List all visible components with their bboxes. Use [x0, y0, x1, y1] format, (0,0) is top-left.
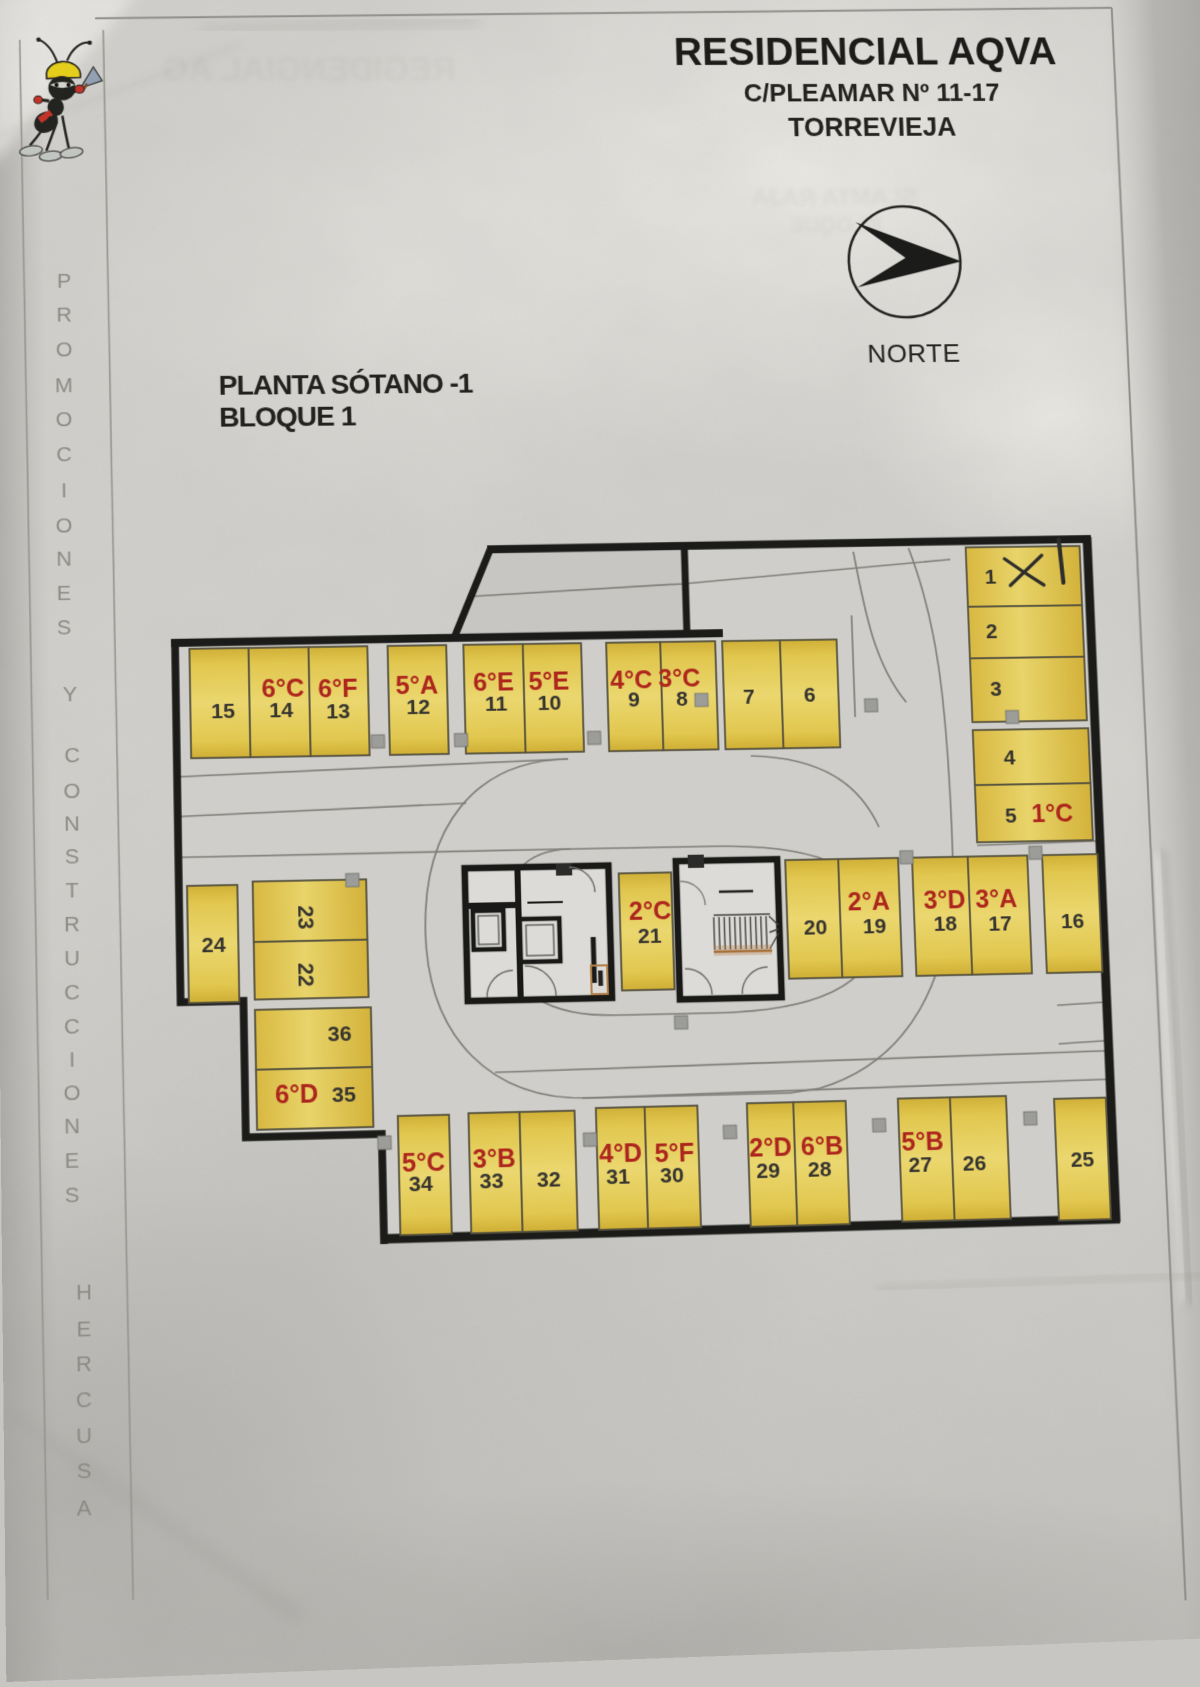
svg-text:C: C	[56, 443, 72, 466]
svg-text:6°D: 6°D	[275, 1081, 319, 1110]
svg-text:U: U	[64, 947, 80, 971]
svg-text:26: 26	[962, 1152, 986, 1176]
svg-text:M: M	[55, 374, 73, 397]
svg-text:C: C	[76, 1388, 92, 1413]
svg-text:C: C	[64, 1015, 80, 1039]
svg-text:I: I	[69, 1048, 75, 1072]
svg-text:23: 23	[293, 905, 317, 929]
svg-text:N: N	[64, 812, 80, 836]
svg-text:O: O	[56, 408, 73, 431]
svg-text:R: R	[64, 913, 80, 937]
svg-text:E: E	[65, 1149, 80, 1174]
svg-text:O: O	[56, 338, 73, 361]
svg-text:3°A: 3°A	[975, 886, 1018, 914]
svg-text:32: 32	[537, 1168, 561, 1193]
svg-text:O: O	[63, 779, 80, 803]
svg-text:C: C	[64, 744, 80, 768]
svg-text:35: 35	[332, 1083, 356, 1108]
svg-text:BLOQUE 1: BLOQUE 1	[219, 400, 356, 432]
svg-text:2: 2	[985, 620, 997, 643]
svg-text:28: 28	[808, 1158, 832, 1182]
svg-text:BLOQUE: BLOQUE	[789, 212, 882, 237]
svg-text:31: 31	[606, 1165, 630, 1190]
svg-text:12: 12	[406, 696, 430, 720]
svg-text:TORREVIEJA: TORREVIEJA	[788, 112, 957, 142]
svg-text:18: 18	[933, 912, 957, 936]
svg-text:C: C	[64, 981, 80, 1005]
svg-text:1: 1	[984, 566, 996, 589]
svg-text:S: S	[77, 1458, 92, 1483]
svg-text:S: S	[65, 845, 80, 869]
svg-text:H: H	[76, 1281, 92, 1306]
svg-text:S: S	[57, 616, 72, 640]
svg-text:13: 13	[326, 700, 350, 724]
svg-text:R: R	[76, 1352, 92, 1377]
svg-text:O: O	[55, 514, 72, 537]
svg-text:17: 17	[988, 912, 1012, 936]
svg-text:14: 14	[269, 699, 294, 723]
svg-text:N: N	[64, 1115, 80, 1140]
svg-text:6: 6	[803, 684, 815, 707]
svg-text:PLANTA SÓTANO -1: PLANTA SÓTANO -1	[218, 368, 473, 401]
svg-text:E: E	[77, 1317, 92, 1342]
svg-text:16: 16	[1061, 910, 1085, 934]
svg-text:24: 24	[202, 933, 227, 957]
svg-text:15: 15	[211, 700, 235, 724]
svg-text:20: 20	[803, 916, 827, 940]
svg-text:10: 10	[537, 691, 561, 715]
svg-text:19: 19	[862, 915, 886, 939]
svg-text:R: R	[56, 303, 72, 326]
svg-text:8: 8	[676, 688, 688, 711]
svg-text:U: U	[76, 1423, 92, 1448]
svg-text:9: 9	[628, 688, 640, 711]
svg-text:34: 34	[409, 1172, 434, 1197]
svg-text:36: 36	[327, 1022, 351, 1046]
svg-text:7: 7	[743, 685, 755, 708]
svg-text:E: E	[57, 582, 72, 606]
svg-text:N: N	[56, 547, 72, 571]
svg-text:5: 5	[1005, 804, 1017, 827]
svg-text:REGIDENGIAL AG: REGIDENGIAL AG	[162, 51, 457, 89]
svg-text:I: I	[61, 479, 67, 502]
svg-text:3: 3	[990, 678, 1002, 701]
svg-text:RESIDENCIAL AQVA: RESIDENCIAL AQVA	[673, 30, 1057, 73]
svg-text:O: O	[63, 1081, 80, 1105]
svg-text:22: 22	[293, 963, 317, 987]
svg-text:21: 21	[638, 924, 662, 948]
svg-text:C/PLEAMAR Nº 11-17: C/PLEAMAR Nº 11-17	[743, 80, 1000, 108]
svg-text:A: A	[76, 1496, 91, 1521]
svg-text:4: 4	[1003, 746, 1016, 769]
svg-text:30: 30	[660, 1163, 684, 1188]
svg-text:29: 29	[756, 1159, 780, 1183]
svg-text:2°C: 2°C	[629, 898, 672, 927]
svg-text:NORTE: NORTE	[867, 338, 961, 368]
svg-text:S: S	[65, 1183, 80, 1208]
svg-text:27: 27	[908, 1153, 932, 1177]
svg-text:P: P	[57, 269, 72, 292]
svg-text:11: 11	[485, 692, 508, 716]
svg-text:Y: Y	[63, 683, 78, 707]
svg-text:3°D: 3°D	[923, 887, 966, 915]
svg-text:T: T	[65, 879, 79, 903]
svg-text:25: 25	[1070, 1148, 1094, 1172]
svg-text:2°A: 2°A	[847, 888, 890, 916]
svg-text:33: 33	[479, 1169, 503, 1194]
svg-text:1°C: 1°C	[1031, 800, 1074, 828]
